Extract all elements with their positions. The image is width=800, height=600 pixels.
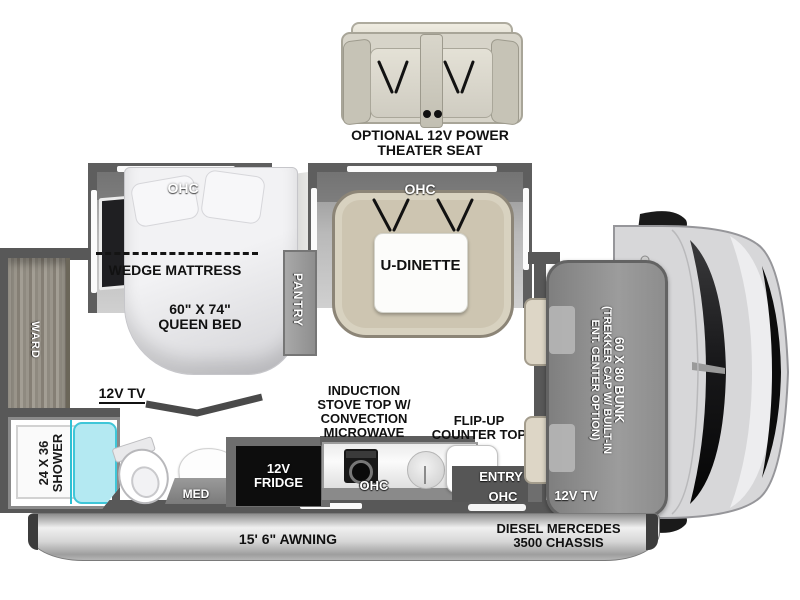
dinette-ohc-label: OHC [395,182,445,197]
awning-label: 15' 6" AWNING [228,532,348,547]
dinette-stitch-marks [348,196,493,238]
tv-left-label: 12V TV [95,386,149,404]
u-dinette-label: U-DINETTE [378,258,463,274]
shower-text-label: SHOWER [51,417,65,509]
shower-size-label: 24 X 36 [37,417,51,509]
bunk-option-label-1: (TREKKER CAP W/ BUILT-IN [600,255,612,505]
sink-faucet [424,466,426,484]
wedge-mattress-dashed-line [96,252,258,255]
med-label: MED [171,488,221,501]
entry-ohc-label: OHC [478,490,528,504]
theater-seat-stitch-marks [341,22,519,128]
induction-stove-label: INDUCTION STOVE TOP W/ CONVECTION MICROW… [300,384,428,440]
wedge-mattress-label: WEDGE MATTRESS [105,263,245,278]
rv-floorplan: OPTIONAL 12V POWER THEATER SEAT PANTRY W… [0,0,800,600]
bunk-seat-notch-top [549,306,575,354]
wall-bathroom-divider [0,408,120,417]
kitchen-ohc-label: OHC [350,479,398,493]
fridge: 12V FRIDGE [236,446,321,506]
queen-bed-label: 60" X 74" QUEEN BED [145,302,255,332]
bedroom-ohc-label: OHC [158,181,208,196]
shower-glass-line [70,420,72,504]
bunk-label: 60 X 80 BUNK (TREKKER CAP W/ BUILT-IN EN… [582,255,626,505]
bunk-size-label: 60 X 80 BUNK [612,255,626,505]
shower-label: 24 X 36 SHOWER [37,417,67,509]
theater-seat-caption-line2: THEATER SEAT [330,143,530,158]
bed-pillow-right [200,169,266,225]
awning-bar-cap-left [28,514,38,550]
fridge-label: 12V FRIDGE [254,462,303,490]
entry-label: ENTRY [470,470,532,484]
stove-control-band [346,451,376,458]
flip-up-counter-label: FLIP-UP COUNTER TOP [420,414,538,442]
bunk-seat-notch-bottom [549,424,575,472]
tv-swing-arm [142,392,267,418]
pantry-label: PANTRY [290,250,304,350]
theater-seat-caption: OPTIONAL 12V POWER THEATER SEAT [330,128,530,158]
bunk-option-label-2: ENT. CENTER OPTION) [589,255,601,505]
sink [407,451,445,489]
awning-bar-cap-right [646,514,658,550]
dinette-slide-window-strip-top [347,166,497,172]
wardrobe-label: WARD [28,305,40,375]
theater-seat-graphic [341,22,519,128]
chassis-label: DIESEL MERCEDES 3500 CHASSIS [486,522,631,550]
entry-step [468,504,526,511]
tv-right-label: 12V TV [549,489,603,503]
theater-seat-caption-line1: OPTIONAL 12V POWER [330,128,530,143]
